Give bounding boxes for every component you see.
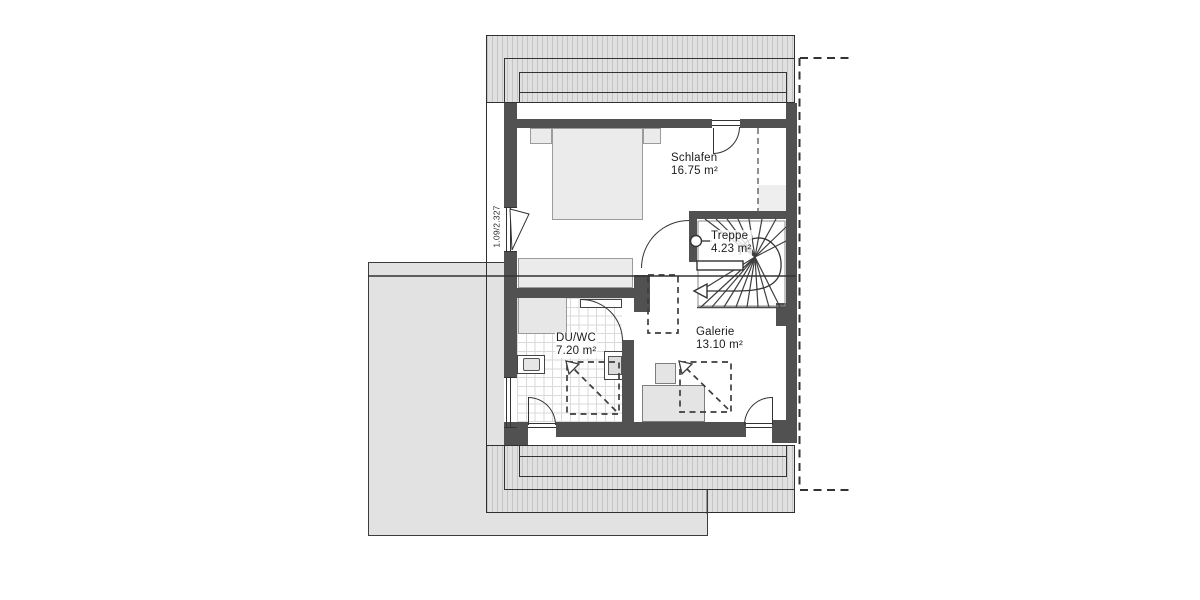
roof-window-marker-galerie xyxy=(679,361,731,412)
room-label-treppe: Treppe 4.23 m² xyxy=(710,230,752,256)
floor-plan-canvas: Schlafen 16.75 m² Treppe 4.23 m² DU/WC 7… xyxy=(0,0,1200,600)
symbols-layer xyxy=(0,0,1200,600)
room-area: 4.23 m² xyxy=(710,243,752,256)
stair-handrail xyxy=(697,261,743,270)
room-label-galerie: Galerie 13.10 m² xyxy=(696,326,743,352)
window-dimension-label: 1.09/2.327 xyxy=(492,197,503,257)
room-name: Treppe xyxy=(710,230,752,243)
room-name: Schlafen xyxy=(671,152,718,165)
room-label-schlafen: Schlafen 16.75 m² xyxy=(671,152,718,178)
room-area: 7.20 m² xyxy=(555,345,597,358)
room-label-duwc: DU/WC 7.20 m² xyxy=(555,332,597,358)
room-name: DU/WC xyxy=(555,332,597,345)
void-dashed-box xyxy=(648,275,678,333)
room-name: Galerie xyxy=(696,326,743,339)
boundary-dashed-lines xyxy=(800,58,854,490)
stair-direction-arrow-icon xyxy=(694,284,707,298)
room-area: 13.10 m² xyxy=(696,339,743,352)
roof-window-marker-duwc xyxy=(566,361,619,414)
window-swing-wedge xyxy=(510,209,529,250)
room-area: 16.75 m² xyxy=(671,165,718,178)
stair-newel-circle-icon xyxy=(691,236,702,247)
